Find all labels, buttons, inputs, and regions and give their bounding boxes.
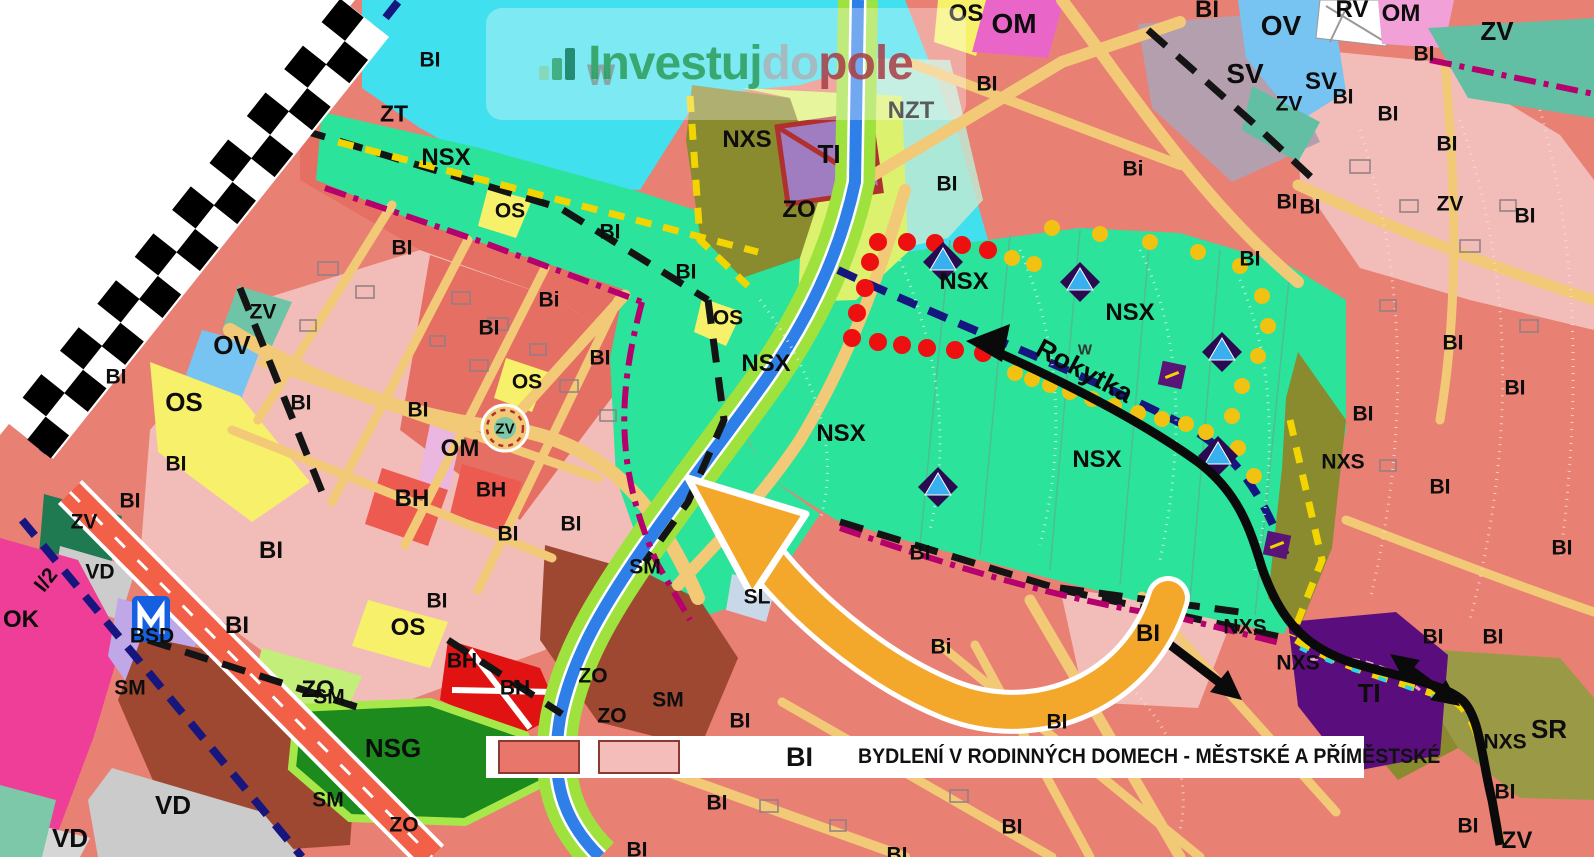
watermark: Investuj do pole	[486, 8, 966, 120]
zoning-map-screenshot: Rokytka BIZTNSXOSBIBIBiBIOSBIZVOVBIOSBIO…	[0, 0, 1594, 857]
watermark-text-3: pole	[818, 40, 913, 88]
legend-swatch-bi-built	[498, 740, 580, 774]
watermark-text-2: do	[762, 40, 819, 88]
legend-swatch-bi-planned	[598, 740, 680, 774]
watermark-text-1: Investuj	[588, 40, 761, 88]
metro-station-icon	[132, 596, 170, 642]
map-graphics: Rokytka	[0, 0, 1594, 857]
legend-zone-code: BI	[786, 736, 813, 778]
roundabout	[482, 405, 528, 451]
legend-zone-description: BYDLENÍ V RODINNÝCH DOMECH - MĚSTSKÉ A P…	[858, 736, 1440, 778]
watermark-logo: Investuj do pole	[539, 40, 913, 88]
bar-chart-icon	[539, 48, 578, 80]
legend-bar: BI BYDLENÍ V RODINNÝCH DOMECH - MĚSTSKÉ …	[486, 736, 1364, 778]
